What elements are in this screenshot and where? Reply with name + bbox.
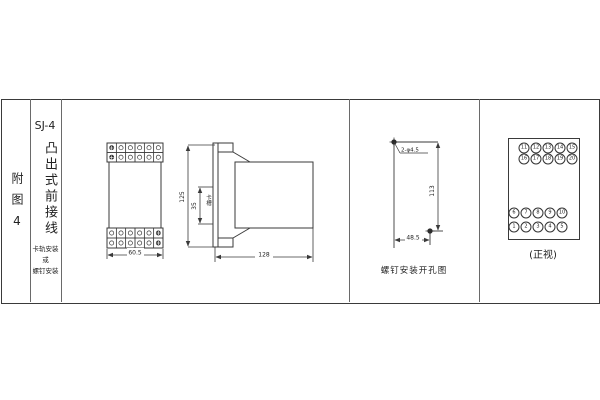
terminal-19: 19 <box>555 154 566 165</box>
terminal-strip-cells <box>107 143 163 248</box>
terminal-12: 12 <box>531 143 542 154</box>
terminal-front-view: 1112131415161718192067891012345 <box>508 138 580 240</box>
drill-view-caption: 螺钉安装开孔图 <box>349 264 479 276</box>
relay-type-label: 凸出式前接线 <box>40 141 59 237</box>
slot-dimension <box>198 187 213 224</box>
drill-view-drawing: 113 48.5 2-φ4.5 <box>380 135 460 255</box>
front-width-dim-text: 60.5 <box>128 250 142 257</box>
terminal-18: 18 <box>543 154 554 165</box>
terminal-5: 5 <box>557 222 568 233</box>
terminal-14: 14 <box>555 143 566 154</box>
mount-note-line1: 卡轨安装 <box>30 245 61 253</box>
model-label: SJ-4 <box>30 119 60 132</box>
terminal-6: 6 <box>509 208 520 219</box>
drawing-sheet: 附图4 SJ-4 凸出式前接线 卡轨安装 或 螺钉安装 60.5 <box>0 0 600 400</box>
terminal-grid: 1112131415161718192067891012345 <box>509 139 579 239</box>
drill-width-dim-text: 48.5 <box>406 235 420 242</box>
slot-label-text: 卡槽 <box>205 193 212 207</box>
terminal-view-caption: (正视) <box>508 246 578 261</box>
terminal-3: 3 <box>533 222 544 233</box>
drill-height-dim-text: 113 <box>429 185 436 197</box>
terminal-9: 9 <box>545 208 556 219</box>
column-divider-2 <box>61 99 62 302</box>
slot-dim-text: 35 <box>191 202 198 210</box>
side-view-drawing: 125 35 卡槽 128 <box>175 138 325 268</box>
terminal-16: 16 <box>519 154 530 165</box>
front-view-drawing: 60.5 <box>100 140 170 265</box>
terminal-8: 8 <box>533 208 544 219</box>
terminal-13: 13 <box>543 143 554 154</box>
side-outline <box>213 143 313 247</box>
terminal-1: 1 <box>509 222 520 233</box>
terminal-4: 4 <box>545 222 556 233</box>
figure-number-label: 附图4 <box>9 172 26 237</box>
mount-note-line2: 或 <box>30 256 61 264</box>
holes-label-text: 2-φ4.5 <box>401 148 419 154</box>
terminal-2: 2 <box>521 222 532 233</box>
terminal-11: 11 <box>519 143 530 154</box>
terminal-20: 20 <box>567 154 578 165</box>
terminal-15: 15 <box>567 143 578 154</box>
column-divider-4 <box>479 99 480 302</box>
terminal-7: 7 <box>521 208 532 219</box>
side-depth-dim-text: 128 <box>258 252 270 259</box>
terminal-17: 17 <box>531 154 542 165</box>
mount-note-line3: 螺钉安装 <box>30 267 61 275</box>
terminal-10: 10 <box>557 208 568 219</box>
side-height-dim-text: 125 <box>179 191 186 203</box>
